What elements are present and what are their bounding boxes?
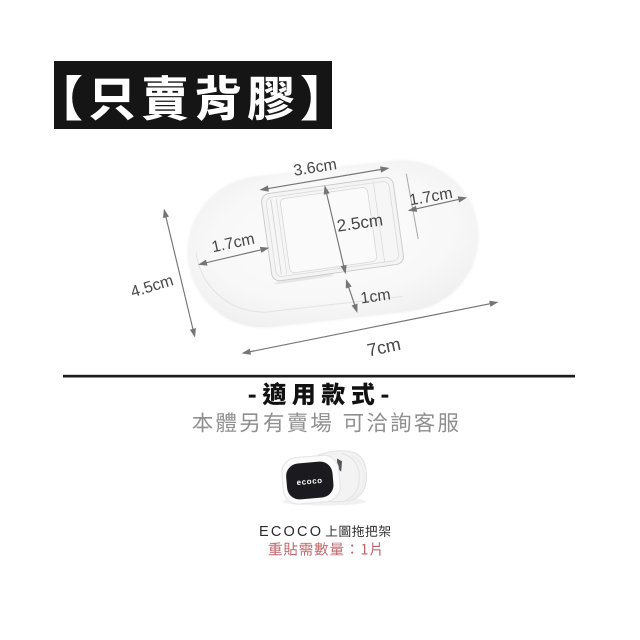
svg-text:ECOCO: ECOCO xyxy=(259,524,323,540)
